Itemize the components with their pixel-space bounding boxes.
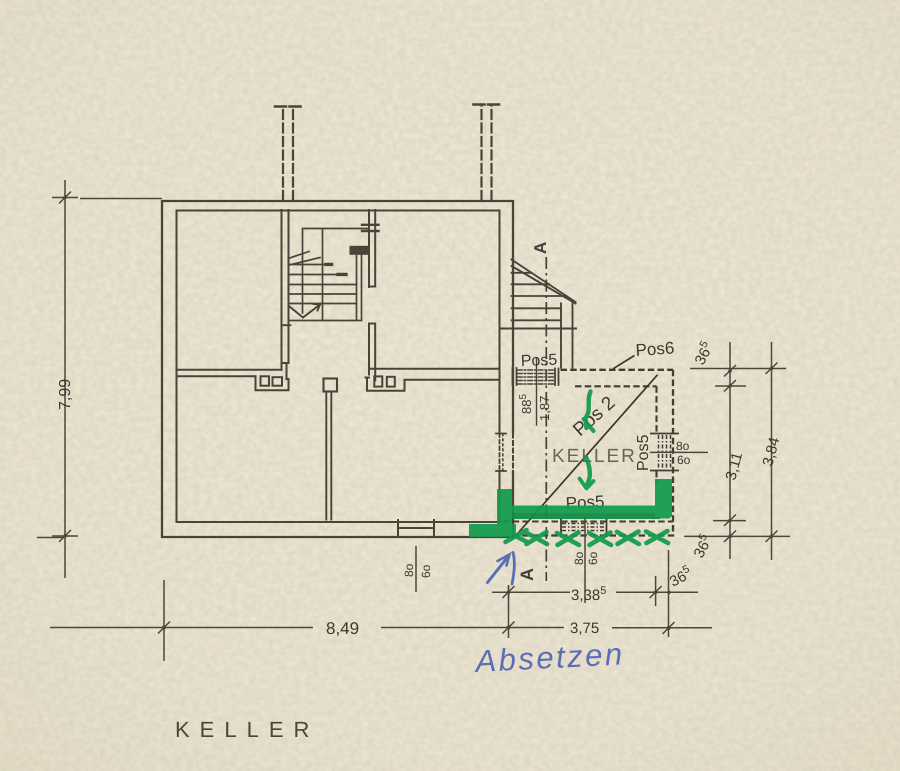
svg-text:7,99: 7,99 — [57, 379, 74, 410]
svg-text:A: A — [531, 242, 550, 254]
svg-text:8o: 8o — [572, 551, 586, 565]
svg-text:A: A — [517, 568, 537, 581]
svg-text:3,75: 3,75 — [570, 620, 599, 637]
svg-text:6o: 6o — [677, 453, 691, 467]
svg-text:8,49: 8,49 — [326, 619, 359, 638]
svg-text:6o: 6o — [586, 551, 600, 565]
svg-text:8o: 8o — [676, 439, 690, 453]
svg-text:1,87: 1,87 — [537, 396, 552, 421]
svg-text:Pos5: Pos5 — [635, 434, 652, 471]
svg-text:8o: 8o — [402, 563, 416, 577]
svg-text:Pos6: Pos6 — [635, 338, 675, 360]
svg-text:6o: 6o — [419, 564, 433, 578]
svg-text:KELLER: KELLER — [175, 717, 319, 742]
svg-text:KELLER: KELLER — [552, 446, 637, 467]
svg-text:Pos5: Pos5 — [521, 352, 558, 370]
